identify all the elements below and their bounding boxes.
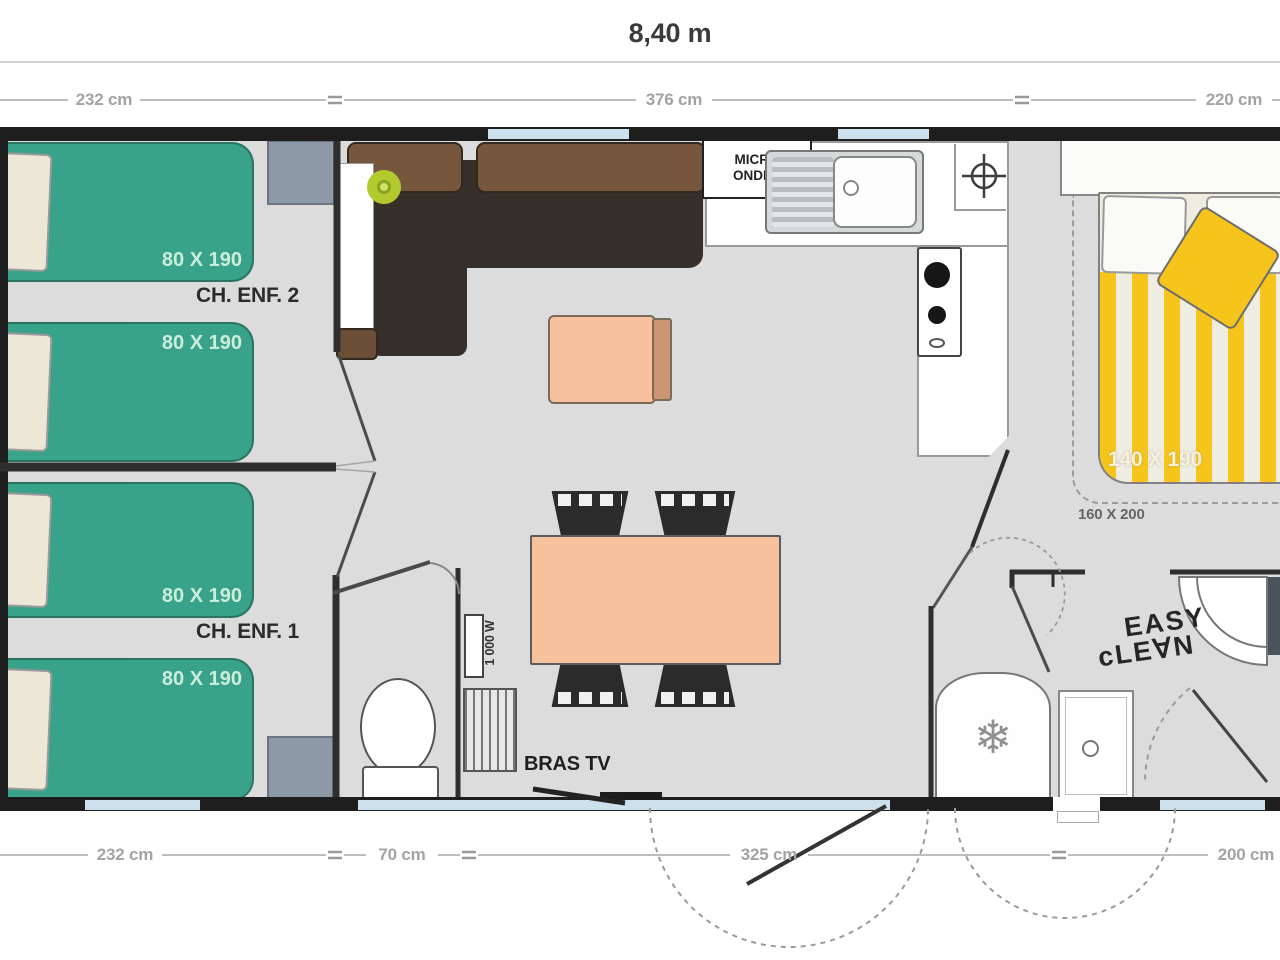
bed-size-label: 80 X 190 <box>162 332 242 355</box>
wardrobe-child1 <box>267 736 335 801</box>
headboard <box>1060 133 1280 196</box>
bathroom-shelf <box>1266 577 1280 655</box>
window-top-kitchen <box>838 129 929 139</box>
child-bed-2: 80 X 190 <box>0 322 254 462</box>
bed-size-label: 80 X 190 <box>162 585 242 608</box>
water-heater-label: 1 000 W <box>483 611 497 675</box>
child-bed-3: 80 X 190 <box>0 482 254 618</box>
wall-left <box>0 127 8 811</box>
floorplan-canvas: 8,40 m 232 cm 376 cm 220 cm 232 cm 70 cm… <box>0 0 1280 960</box>
dim-bottom-4: 200 cm <box>1218 845 1274 865</box>
dim-top-2: 376 cm <box>646 90 702 110</box>
cabinet-handle <box>1082 740 1099 757</box>
window-bottom-living <box>358 800 890 810</box>
stove <box>917 247 962 357</box>
wall-top <box>0 127 1280 141</box>
child-bed-4: 80 X 190 <box>0 658 254 801</box>
dim-top-3: 220 cm <box>1206 90 1262 110</box>
window-top-living <box>488 129 629 139</box>
radiator <box>463 688 517 772</box>
coffee-table <box>548 315 656 404</box>
tv-bracket-label: BRAS TV <box>524 753 610 776</box>
entry-step <box>1057 811 1099 823</box>
sofa-armrest <box>336 328 378 360</box>
sink-basin <box>833 156 917 228</box>
coffee-table-tray <box>652 318 672 401</box>
bathroom-cabinet <box>1058 690 1134 802</box>
room-label-child1: CH. ENF. 1 <box>196 620 299 644</box>
wardrobe-child2 <box>267 140 335 205</box>
entry-door-gap <box>1053 797 1100 811</box>
toilet-bowl <box>360 678 436 776</box>
green-cushion-center <box>377 180 391 194</box>
room-label-child2: CH. ENF. 2 <box>196 284 299 308</box>
dim-bottom-3: 325 cm <box>741 845 797 865</box>
window-bottom-bathroom <box>1160 800 1265 810</box>
window-bottom-child1 <box>85 800 200 810</box>
sink-drainer <box>772 157 834 227</box>
dining-chair <box>653 491 737 537</box>
dining-table <box>530 535 781 665</box>
dim-top-1: 232 cm <box>76 90 132 110</box>
child-bed-1: 80 X 190 <box>0 142 254 282</box>
bed-size-label: 80 X 190 <box>162 249 242 272</box>
fridge: ❄ <box>935 672 1051 802</box>
bed-size-label: 80 X 190 <box>162 668 242 691</box>
dining-chair <box>653 660 737 707</box>
kitchen-sink <box>765 150 924 234</box>
dining-chair <box>550 491 630 537</box>
dim-bottom-2: 70 cm <box>378 845 425 865</box>
plan-title: 8,40 m <box>629 18 712 49</box>
toilet-tank <box>362 766 439 800</box>
dim-bottom-1: 232 cm <box>97 845 153 865</box>
water-heater <box>464 614 484 678</box>
snowflake-icon: ❄ <box>974 710 1013 764</box>
alt-bed-size-label: 160 X 200 <box>1078 506 1145 523</box>
sofa-back-cushion <box>476 142 706 193</box>
dining-chair <box>550 660 630 707</box>
